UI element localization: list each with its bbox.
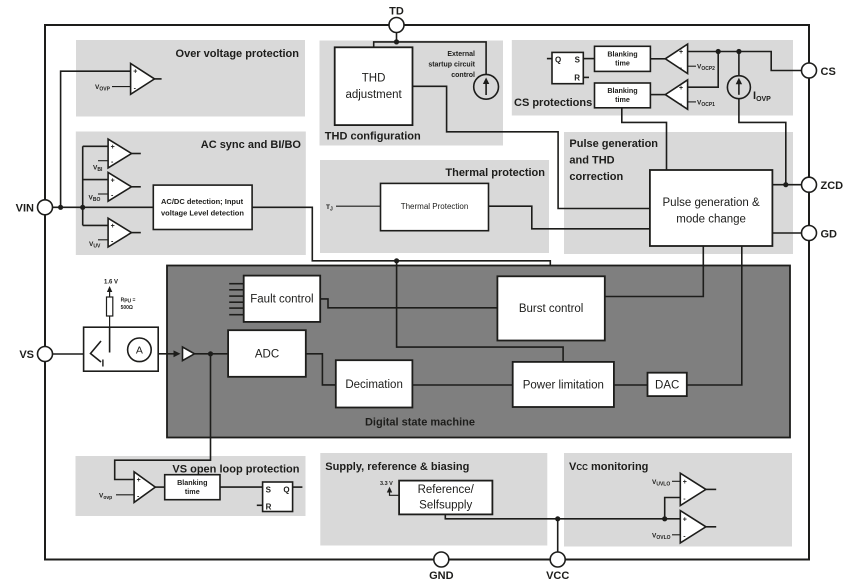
svg-text:Thermal protection: Thermal protection [445,167,545,179]
svg-text:Pulse generation: Pulse generation [569,138,658,150]
svg-text:A: A [136,345,143,357]
svg-text:ADC: ADC [255,349,279,361]
svg-text:500Ω: 500Ω [121,305,133,311]
svg-text:DAC: DAC [655,379,679,391]
svg-text:Fault control: Fault control [250,294,313,306]
svg-text:CS protections: CS protections [514,97,592,109]
svg-text:Digital state machine: Digital state machine [365,417,475,429]
svg-text:VS: VS [19,349,34,361]
svg-text:voltage Level detection: voltage Level detection [161,209,244,218]
svg-text:THD: THD [362,73,386,85]
svg-text:Thermal Protection: Thermal Protection [401,202,469,211]
svg-text:S: S [575,56,581,65]
svg-text:ZCD: ZCD [821,180,844,192]
svg-text:+: + [683,516,687,523]
svg-text:Q: Q [555,56,561,65]
svg-text:Blanking: Blanking [607,50,637,59]
svg-text:+: + [111,223,115,230]
svg-text:VS open loop protection: VS open loop protection [172,464,299,476]
svg-text:Reference/: Reference/ [418,484,475,496]
svg-text:adjustment: adjustment [345,89,402,101]
svg-text:Q: Q [283,486,289,495]
svg-text:Supply, reference & biasing: Supply, reference & biasing [325,461,469,473]
svg-text:VCC monitoring: VCC monitoring [569,461,648,473]
svg-text:GD: GD [821,229,838,241]
svg-text:GND: GND [429,570,454,582]
svg-text:+: + [683,479,687,486]
svg-text:+: + [679,49,683,56]
svg-text:time: time [185,487,200,496]
svg-text:mode change: mode change [676,214,746,226]
svg-text:AC sync and BI/BO: AC sync and BI/BO [201,139,302,151]
svg-text:Pulse generation &: Pulse generation & [663,197,761,209]
svg-text:Burst control: Burst control [519,303,584,315]
svg-text:Selfsupply: Selfsupply [419,500,472,512]
svg-text:correction: correction [569,171,623,183]
svg-text:3.3 V: 3.3 V [380,481,393,487]
svg-text:RPU =: RPU = [121,298,136,305]
svg-text:Blanking: Blanking [607,86,637,95]
svg-text:+: + [133,69,137,76]
svg-text:startup circuit: startup circuit [428,62,475,69]
svg-text:1.6 V: 1.6 V [104,280,118,286]
svg-text:CS: CS [821,66,836,78]
svg-text:+: + [111,177,115,184]
svg-text:R: R [574,74,580,83]
svg-text:Blanking: Blanking [177,478,207,487]
svg-text:VCC: VCC [546,570,569,582]
svg-text:Decimation: Decimation [345,379,403,391]
svg-text:+: + [679,85,683,92]
svg-text:+: + [111,144,115,151]
svg-text:TD: TD [389,6,404,18]
svg-text:S: S [266,486,272,495]
svg-text:+: + [137,477,141,484]
svg-text:R: R [266,503,272,512]
svg-text:time: time [615,59,630,68]
svg-text:External: External [447,51,475,58]
svg-text:THD configuration: THD configuration [325,131,421,143]
svg-text:AC/DC detection; Input: AC/DC detection; Input [161,197,244,206]
svg-text:control: control [451,72,475,79]
svg-text:VIN: VIN [16,202,34,214]
svg-text:I: I [102,359,105,370]
svg-text:Over voltage protection: Over voltage protection [176,48,300,60]
svg-text:and THD: and THD [569,155,614,167]
svg-text:time: time [615,95,630,104]
svg-text:Power limitation: Power limitation [523,380,604,392]
